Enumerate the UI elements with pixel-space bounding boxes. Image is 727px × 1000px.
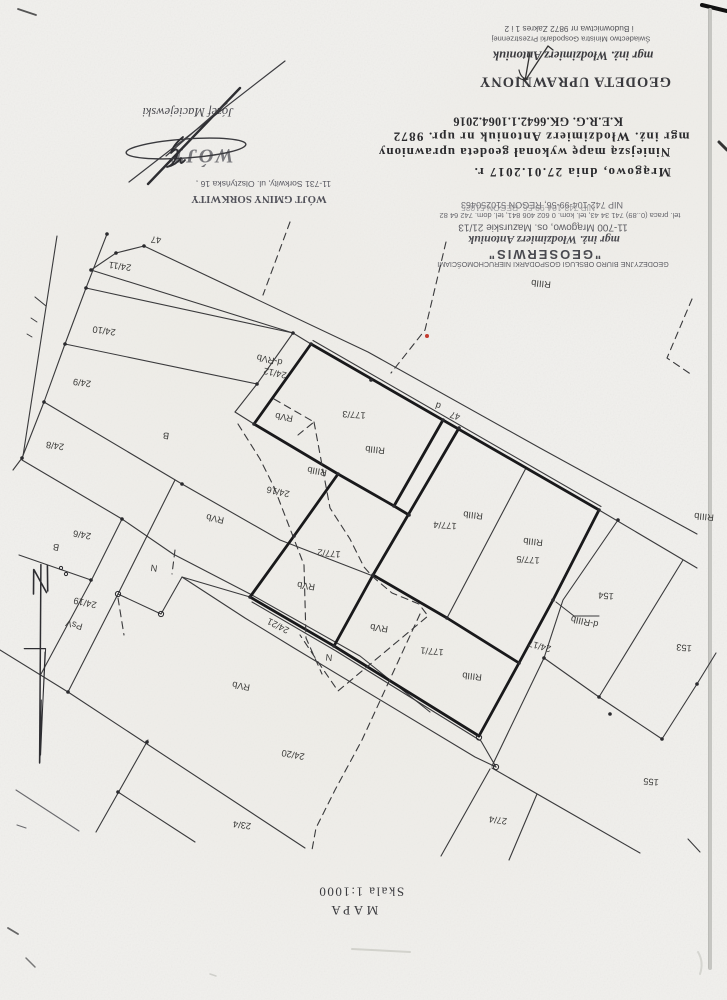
svg-text:WÓJT GMINY SORKWITY: WÓJT GMINY SORKWITY (191, 193, 327, 205)
svg-text:i Budownictwa nr 9872 Zakres 1: i Budownictwa nr 9872 Zakres 1 i 2 (504, 24, 634, 34)
svg-text:RIIIb: RIIIb (462, 670, 483, 682)
svg-text:Świadectwo Ministra Gospodarki: Świadectwo Ministra Gospodarki Przestrze… (491, 34, 650, 43)
svg-text:"GEOSERWIS": "GEOSERWIS" (487, 247, 601, 262)
svg-text:RIIIb: RIIIb (523, 536, 544, 548)
svg-text:RIIIb: RIIIb (694, 511, 714, 523)
svg-text:153: 153 (676, 642, 692, 653)
svg-text:mgr inż. Włodzimierz Antoniuk: mgr inż. Włodzimierz Antoniuk (492, 49, 653, 63)
svg-text:K.E.R.G. GK.6642.1.1064.2016: K.E.R.G. GK.6642.1.1064.2016 (453, 115, 623, 129)
svg-text:11-731 Sorkwity, ul. Olsztyńsk: 11-731 Sorkwity, ul. Olsztyńska 16 , (196, 179, 331, 189)
svg-text:N: N (325, 652, 333, 663)
svg-text:GEODEZYJNE BIURO OBSŁUGI GOSPO: GEODEZYJNE BIURO OBSŁUGI GOSPODARKI NIER… (437, 260, 668, 269)
svg-text:177/5: 177/5 (516, 554, 540, 566)
svg-text:47: 47 (150, 234, 161, 245)
svg-text:mgr inż. Włodzimierz Antoniuk: mgr inż. Włodzimierz Antoniuk (468, 233, 620, 247)
svg-text:177/4: 177/4 (433, 520, 457, 532)
svg-text:tel. praca (0..89) 741 34 43,: tel. praca (0..89) 741 34 43, tel. kom. … (440, 211, 681, 220)
svg-text:154: 154 (598, 590, 614, 601)
svg-text:11-700 Mrągowo, os. Mazurskie: 11-700 Mrągowo, os. Mazurskie 21/13 (458, 222, 628, 233)
svg-text:MAPA: MAPA (328, 903, 378, 918)
svg-text:mgr inż. Włodzimierz Antoniuk: mgr inż. Włodzimierz Antoniuk nr upr. 98… (393, 130, 690, 145)
svg-text:177/1: 177/1 (420, 645, 444, 657)
svg-text:155: 155 (643, 776, 659, 787)
svg-text:GEODETA UPRAWNIONY: GEODETA UPRAWNIONY (479, 73, 671, 89)
svg-text:RIIIb: RIIIb (531, 278, 551, 290)
svg-text:N: N (150, 563, 158, 574)
svg-text:177/3: 177/3 (342, 409, 366, 421)
svg-text:Mrągowo, dnia 27.01.2017 r.: Mrągowo, dnia 27.01.2017 r. (473, 165, 671, 180)
svg-text:RIIIb: RIIIb (463, 509, 484, 521)
svg-text:Niniejszą mapę wykonał geodeta: Niniejszą mapę wykonał geodeta uprawnion… (378, 145, 670, 160)
svg-text:Skala 1:1000: Skala 1:1000 (318, 885, 404, 900)
svg-text:RIIIb: RIIIb (365, 444, 386, 456)
